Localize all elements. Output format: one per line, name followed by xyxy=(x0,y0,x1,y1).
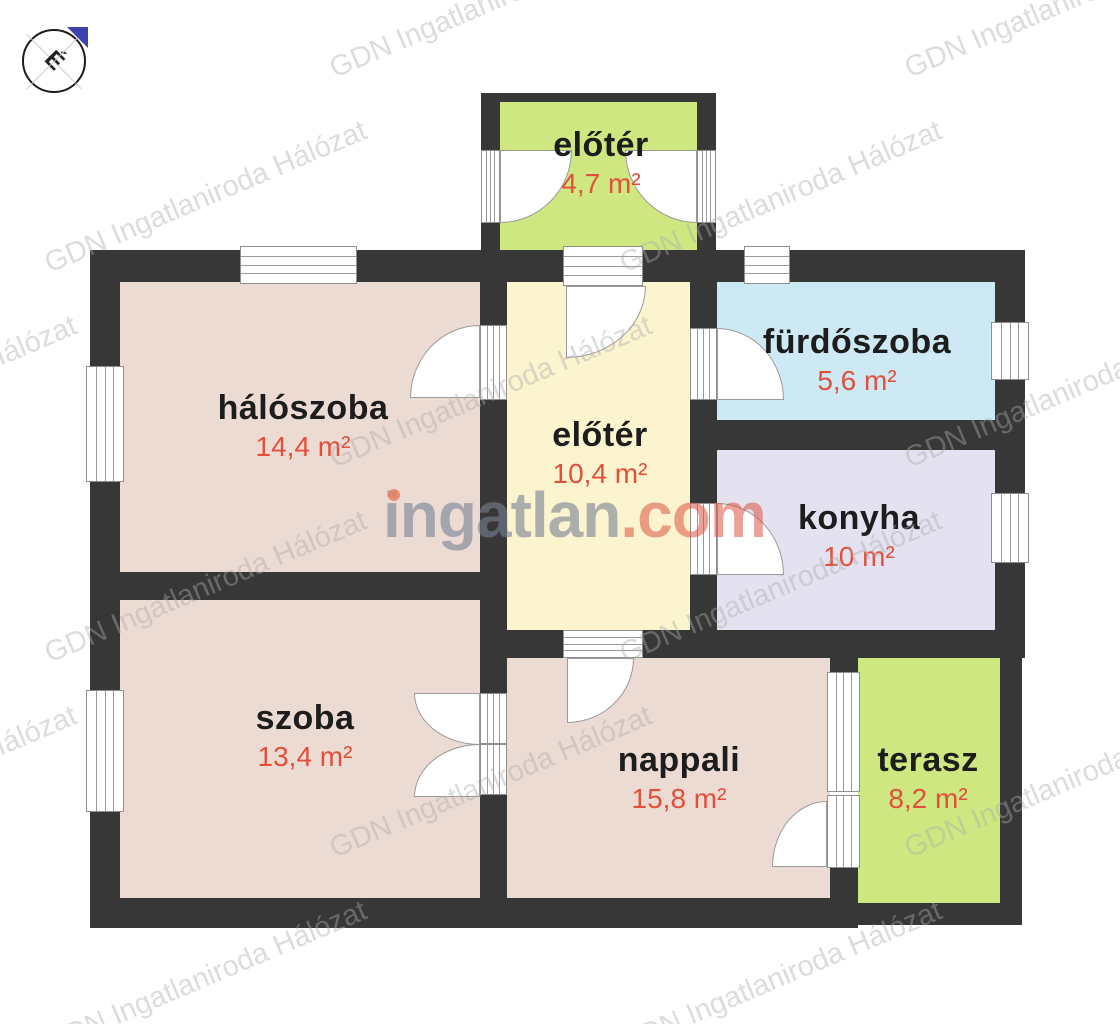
watermark-text: GDN Ingatlaniroda Hálózat xyxy=(900,0,1120,85)
room-area: 5,6 m² xyxy=(763,366,951,396)
watermark-text: GDN Ingatlaniroda Hálózat xyxy=(325,0,657,85)
door-opening xyxy=(827,795,860,868)
door-opening xyxy=(563,630,643,658)
room-area: 8,2 m² xyxy=(877,784,978,814)
room-label-konyha: konyha 10 m² xyxy=(798,499,920,572)
room-area: 10,4 m² xyxy=(552,459,648,489)
door-opening xyxy=(480,693,507,744)
wall-bottom xyxy=(90,898,858,928)
room-label-szoba: szoba 13,4 m² xyxy=(256,699,355,772)
wall-eloter-top-top xyxy=(481,93,716,102)
compass: É xyxy=(22,29,86,93)
window xyxy=(86,690,124,812)
wall-right xyxy=(995,250,1025,658)
window xyxy=(991,493,1029,563)
room-name: előtér xyxy=(553,126,649,164)
room-label-eloter-top: előtér 4,7 m² xyxy=(553,126,649,199)
watermark-text: GDN Ingatlaniroda Hálózat xyxy=(0,310,82,476)
door-opening xyxy=(563,246,643,286)
room-name: konyha xyxy=(798,499,920,537)
wall-terasz-right xyxy=(1000,658,1022,925)
room-label-nappali: nappali 15,8 m² xyxy=(618,741,741,814)
wall-halo-szoba xyxy=(120,572,480,600)
door-opening xyxy=(690,503,717,575)
door-opening xyxy=(481,150,500,223)
door-opening xyxy=(480,325,507,400)
window xyxy=(827,672,860,792)
room-name: szoba xyxy=(256,699,355,737)
room-name: nappali xyxy=(618,741,741,779)
room-area: 15,8 m² xyxy=(618,784,741,814)
wall-top xyxy=(90,250,1025,282)
wall-furdo-konyha xyxy=(717,420,1025,450)
room-name: fürdőszoba xyxy=(763,323,951,361)
window xyxy=(86,366,124,482)
window xyxy=(991,322,1029,380)
room-area: 13,4 m² xyxy=(256,742,355,772)
room-area: 10 m² xyxy=(798,542,920,572)
compass-north-letter: É xyxy=(38,45,69,76)
room-label-furdoszoba: fürdőszoba 5,6 m² xyxy=(763,323,951,396)
room-name: terasz xyxy=(877,741,978,779)
wall-left xyxy=(90,250,120,928)
room-name: előtér xyxy=(552,416,648,454)
window xyxy=(240,246,357,284)
room-name: hálószoba xyxy=(218,389,389,427)
window xyxy=(744,246,790,284)
room-area: 4,7 m² xyxy=(553,169,649,199)
room-label-haloszoba: hálószoba 14,4 m² xyxy=(218,389,389,462)
wall-terasz-bottom xyxy=(845,903,1022,925)
room-area: 14,4 m² xyxy=(218,432,389,462)
door-opening xyxy=(690,328,717,400)
room-label-eloter-center: előtér 10,4 m² xyxy=(552,416,648,489)
door-opening xyxy=(697,150,716,223)
watermark-text: GDN Ingatlaniroda Hálózat xyxy=(0,700,82,866)
wall-south-band xyxy=(480,630,1025,658)
room-label-terasz: terasz 8,2 m² xyxy=(877,741,978,814)
floor-plan: előtér 4,7 m² hálószoba 14,4 m² előtér 1… xyxy=(0,0,1120,1024)
door-opening xyxy=(480,744,507,795)
wall-terasz-stub-bottom xyxy=(830,866,858,908)
